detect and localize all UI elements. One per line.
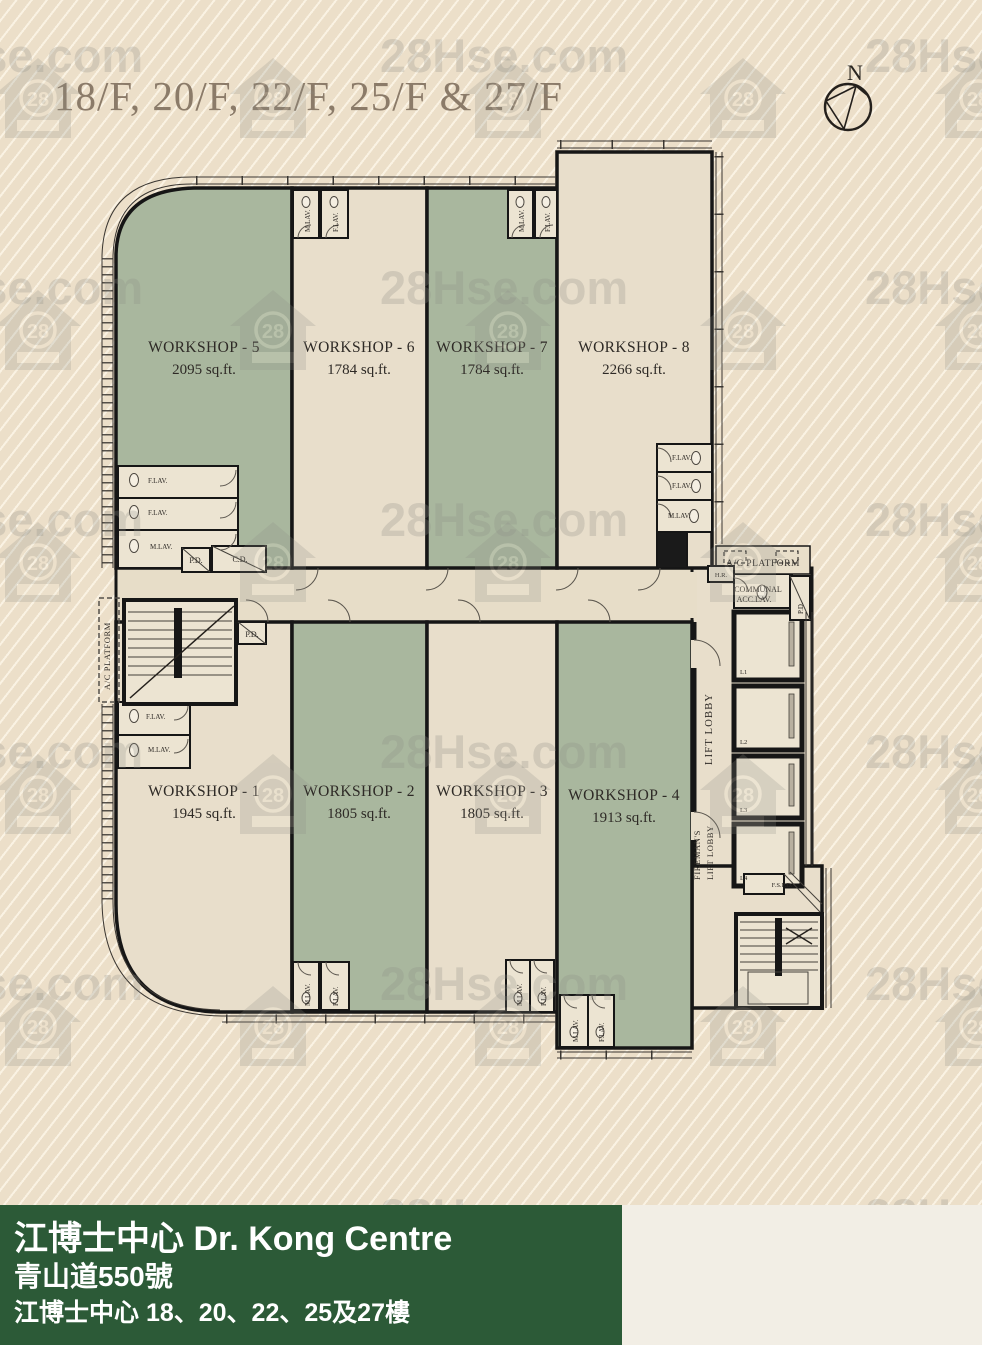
building-address: 青山道550號 xyxy=(14,1255,173,1295)
flav-label-2: F.LAV. xyxy=(148,509,168,517)
workshop-1-name: WORKSHOP - 1 xyxy=(148,783,260,800)
lift-lobby-label: LIFT LOBBY xyxy=(704,693,715,765)
building-floors: 江博士中心 18、20、22、25及27樓 xyxy=(14,1293,410,1329)
cd-label: C.D. xyxy=(232,555,247,564)
hose-reel-label: H.R. xyxy=(715,572,728,579)
workshop-4-name: WORKSHOP - 4 xyxy=(568,787,680,804)
pd-label-2: P.D. xyxy=(245,630,258,639)
flav-label-7: F.LAV. xyxy=(544,212,552,232)
flav-label-6: F.LAV. xyxy=(332,212,340,232)
flav-label-8: F.LAV. xyxy=(332,986,340,1006)
flav-label-3: F.LAV. xyxy=(146,713,166,721)
left-staircase xyxy=(124,600,236,704)
communal-lav-label-1: COMMUNAL xyxy=(734,585,782,594)
floor-plan-page: 18/F, 20/F, 22/F, 25/F & 27/F N xyxy=(0,0,982,1345)
mlav-label-3: M.LAV. xyxy=(668,512,691,520)
lift-4-label: L4 xyxy=(740,875,748,882)
unit-workshop-7 xyxy=(427,188,557,568)
flav-label-9: F.LAV. xyxy=(540,986,548,1006)
workshop-8-area: 2266 sq.ft. xyxy=(602,362,666,378)
unit-workshop-6 xyxy=(292,188,427,568)
unit-workshop-4 xyxy=(557,622,692,1048)
workshop-5-area: 2095 sq.ft. xyxy=(172,362,236,378)
workshop-1-area: 1945 sq.ft. xyxy=(172,806,236,822)
flav-label-4: F.LAV. xyxy=(672,454,692,462)
ac-platform-left-label: A/C PLATFORM xyxy=(102,622,112,690)
corridor-opening xyxy=(688,572,697,618)
flav-label-1: F.LAV. xyxy=(148,477,168,485)
workshop-7-area: 1784 sq.ft. xyxy=(460,362,524,378)
workshop-2-area: 1805 sq.ft. xyxy=(327,806,391,822)
footer: 江博士中心 Dr. Kong Centre 青山道550號 江博士中心 18、2… xyxy=(0,1205,982,1345)
workshop-2-name: WORKSHOP - 2 xyxy=(303,783,415,800)
mlav-label-1: M.LAV. xyxy=(150,543,173,551)
floor-plan: WORKSHOP - 5 2095 sq.ft. WORKSHOP - 6 17… xyxy=(0,0,982,1345)
lift-1-label: L1 xyxy=(740,669,747,676)
workshop-3-area: 1805 sq.ft. xyxy=(460,806,524,822)
workshop-8-name: WORKSHOP - 8 xyxy=(578,339,690,356)
workshop-6-name: WORKSHOP - 6 xyxy=(303,339,415,356)
building-info-panel: 江博士中心 Dr. Kong Centre 青山道550號 江博士中心 18、2… xyxy=(0,1205,622,1345)
mlav-label-5: M.LAV. xyxy=(518,209,526,232)
firemans-lobby-label-1: FIREMAN'S xyxy=(692,830,702,880)
workshop-6-area: 1784 sq.ft. xyxy=(327,362,391,378)
flav-label-10: F.LAV. xyxy=(598,1022,606,1042)
lift-3-label: L3 xyxy=(740,807,747,814)
ac-platform-right-label: A/C PLATFORM xyxy=(726,559,800,569)
right-staircase xyxy=(736,914,822,1008)
mlav-label-6: M.LAV. xyxy=(304,983,312,1006)
communal-lav-label-2: ACC.LAV. xyxy=(737,595,772,604)
workshop-5-name: WORKSHOP - 5 xyxy=(148,339,260,356)
workshop-4-area: 1913 sq.ft. xyxy=(592,810,656,826)
fspd-label: F.S.P.D. xyxy=(772,882,793,889)
pd-label-1: P.D. xyxy=(189,556,202,565)
mlav-label-8: M.LAV. xyxy=(572,1019,580,1042)
flav-label-5: F.LAV. xyxy=(672,482,692,490)
lift-2-label: L2 xyxy=(740,739,747,746)
workshop-3-name: WORKSHOP - 3 xyxy=(436,783,548,800)
mlav-label-2: M.LAV. xyxy=(148,746,171,754)
pd-label-3: P.D. xyxy=(797,602,805,614)
building-title: 江博士中心 Dr. Kong Centre xyxy=(14,1211,452,1260)
firemans-lobby-label-2: LIFT LOBBY xyxy=(705,825,715,880)
workshop-7-name: WORKSHOP - 7 xyxy=(436,339,548,356)
mlav-label-4: M.LAV. xyxy=(304,209,312,232)
mlav-label-7: M.LAV. xyxy=(516,983,524,1006)
